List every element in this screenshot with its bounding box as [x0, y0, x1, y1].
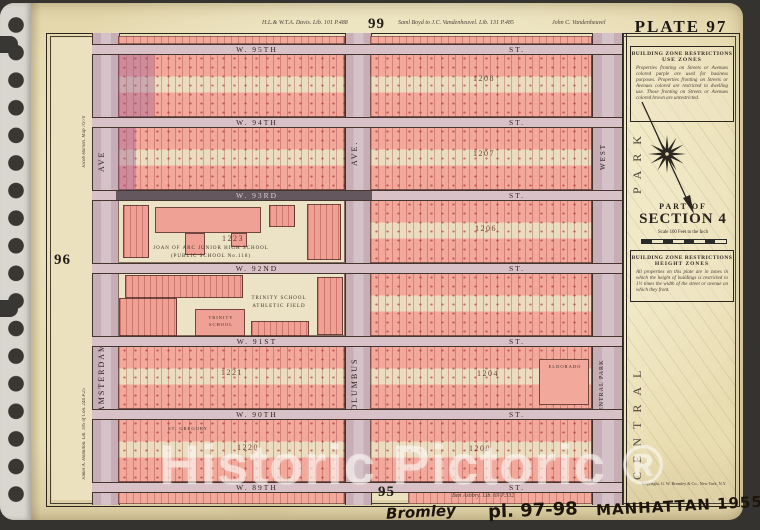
eldorado-label: ELDORADO [542, 364, 588, 369]
part-of-label: PART OF [640, 202, 726, 211]
scale-note: Scale 100 Feet to the Inch [640, 230, 726, 235]
atlas-scan: 99 96 95 H.L.& W.T.A. Davis. Lib. 101 P.… [0, 0, 760, 530]
street-w90: W. 90TH ST. [92, 409, 622, 420]
amsterdam-ave-label: AVE [97, 138, 106, 184]
street-name-label: W. 92ND [192, 264, 322, 273]
use-zones-subheading: USE ZONES [631, 57, 733, 63]
spiral-binding-holes-icon [5, 12, 27, 512]
block-number: 1207 [462, 149, 506, 158]
handwritten-note-bromley: Bromley [386, 501, 457, 523]
street-suffix-label: ST. [492, 45, 542, 54]
st-gregory-label: ST. GREGORY [158, 426, 218, 431]
height-zones-text: All properties on this plate are in zone… [636, 270, 728, 294]
cpw-central-park-label: CENTRAL PARK [599, 330, 605, 445]
street-name-label: W. 91ST [192, 337, 322, 346]
trinity-school-label: TRINITY [200, 315, 242, 320]
building [269, 205, 295, 227]
block-w90-w91-west [118, 345, 345, 409]
block-w94-w95-east [370, 53, 592, 117]
height-zones-box: BUILDING ZONE RESTRICTIONS HEIGHT ZONES … [630, 250, 734, 302]
street-w94: W. 94TH ST. [92, 117, 622, 128]
block-number: 1206 [464, 224, 508, 233]
commercial-zone-patch [118, 126, 136, 190]
scale-bar [641, 239, 727, 244]
street-suffix-label: ST. [492, 337, 542, 346]
cpw-west-label: WEST [599, 128, 607, 184]
watermark: Historic Pictoric ® [88, 432, 736, 497]
deed-note-vertical: Jacob Harsen. Map 76/70 [82, 58, 87, 168]
block-number: 1204 [466, 369, 510, 378]
columbus-label: COLUMBUS [350, 338, 359, 438]
commercial-zone-patch [118, 53, 154, 117]
section-label: SECTION 4 [628, 211, 738, 228]
block-w91-w92-east [370, 272, 592, 336]
trinity-school-label2: SCHOOL [200, 322, 242, 327]
adjacent-plate-number-top: 99 [368, 16, 385, 33]
page-fold-shadow [31, 3, 41, 520]
deed-note: John C. Vandenheuvel [552, 20, 605, 26]
torn-hole-icon [0, 36, 18, 53]
street-name-label: W. 90TH [192, 410, 322, 419]
athletic-field-label: TRINITY SCHOOL [219, 296, 339, 301]
street-suffix-label: ST. [492, 264, 542, 273]
deed-note: H.L.& W.T.A. Davis. Lib. 101 P.488 [262, 20, 348, 26]
street-w93: W. 93RD ST. [92, 190, 622, 201]
school-building-wing [185, 233, 205, 255]
street-suffix-label: ST. [492, 410, 542, 419]
street-suffix-label: ST. [492, 191, 542, 200]
street-w95: W. 95TH ST. [92, 44, 622, 55]
joan-of-arc-school-label: JOAN OF ARC JUNIOR HIGH SCHOOL [131, 246, 291, 251]
block-w93-w94-east [370, 126, 592, 190]
block-w93-w94-west [118, 126, 345, 190]
building [251, 321, 309, 336]
handwritten-note-plates: pl. 97-98 [488, 498, 578, 522]
street-name-label: W. 95TH [192, 45, 322, 54]
torn-hole-icon [0, 300, 18, 317]
plate-title: PLATE 97 [622, 17, 740, 37]
block-w92-w93-west-school: 1223 JOAN OF ARC JUNIOR HIGH SCHOOL (PUB… [118, 199, 345, 263]
building [119, 298, 177, 336]
columbus-ave-label: AVE. [350, 130, 359, 176]
deed-note: Saml Boyd to J.C. Vandenheuvel. Lib. 131… [398, 20, 514, 26]
building [307, 204, 341, 260]
block-number: 1221 [210, 368, 254, 377]
rowhouses [125, 275, 243, 298]
athletic-field-label2: ATHLETIC FIELD [219, 304, 339, 309]
trinity-school-building: TRINITY SCHOOL [195, 309, 245, 336]
block-number: 1208 [462, 74, 506, 83]
block-sliver [118, 36, 345, 44]
street-name-label: W. 93RD [192, 191, 322, 200]
adjacent-plate-number-left: 96 [54, 252, 71, 269]
park-vertical-label: PARK [630, 98, 645, 194]
block-sliver [370, 36, 592, 44]
street-w92: W. 92ND ST. [92, 263, 622, 274]
block-w91-w92-west-trinity: TRINITY SCHOOL TRINITY SCHOOL ATHLETIC F… [118, 272, 345, 336]
joan-of-arc-school-sublabel: (PUBLIC SCHOOL No.118) [131, 254, 291, 259]
street-suffix-label: ST. [492, 118, 542, 127]
block-number: 1223 [211, 234, 255, 243]
street-w91: W. 91ST ST. [92, 336, 622, 347]
deed-note-vertical: James A. Hamilton. Lib. 185 of Con. 244 … [82, 300, 87, 480]
eldorado-building: ELDORADO [539, 359, 589, 405]
height-zones-subheading: HEIGHT ZONES [631, 261, 733, 267]
school-building [155, 207, 261, 233]
street-name-label: W. 94TH [192, 118, 322, 127]
